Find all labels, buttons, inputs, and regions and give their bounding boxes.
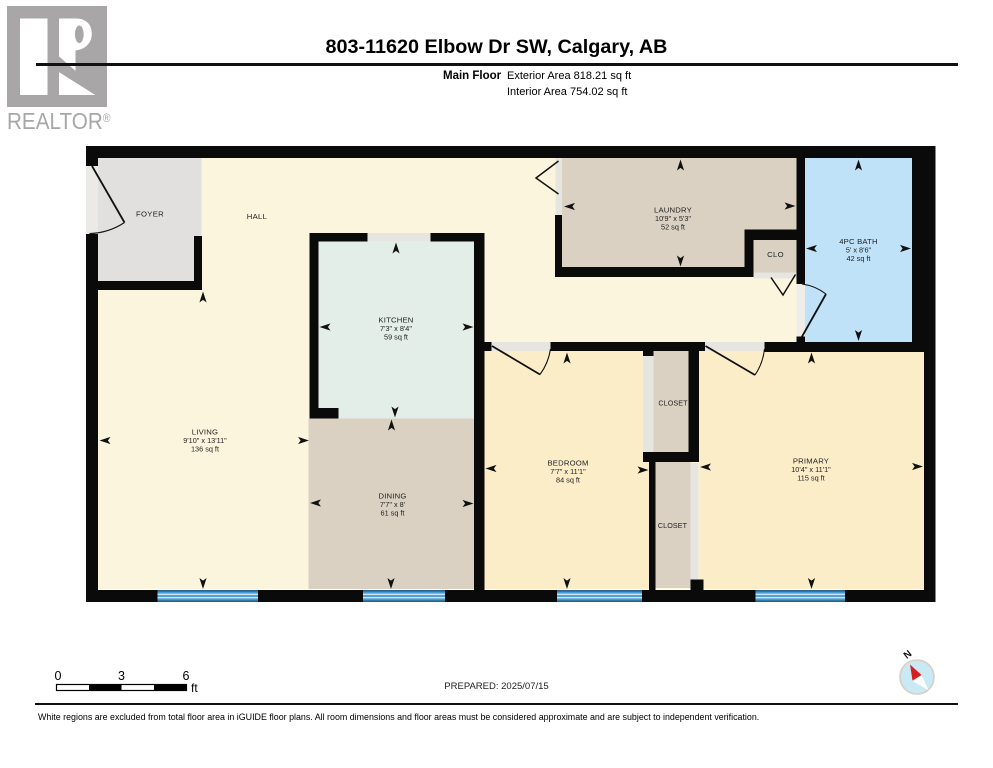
svg-text:136 sq ft: 136 sq ft [191,444,219,453]
svg-text:CLO: CLO [767,250,784,259]
svg-text:115 sq ft: 115 sq ft [797,473,824,482]
svg-text:FOYER: FOYER [136,210,164,219]
svg-text:84 sq ft: 84 sq ft [556,475,580,484]
svg-text:CLOSET: CLOSET [658,521,688,530]
svg-text:CLOSET: CLOSET [658,399,688,408]
svg-text:59 sq ft: 59 sq ft [384,332,408,341]
svg-text:42 sq ft: 42 sq ft [847,254,871,263]
svg-text:N: N [902,648,914,661]
svg-text:52 sq ft: 52 sq ft [661,222,685,231]
svg-text:61 sq ft: 61 sq ft [381,508,405,517]
svg-text:HALL: HALL [247,212,268,221]
